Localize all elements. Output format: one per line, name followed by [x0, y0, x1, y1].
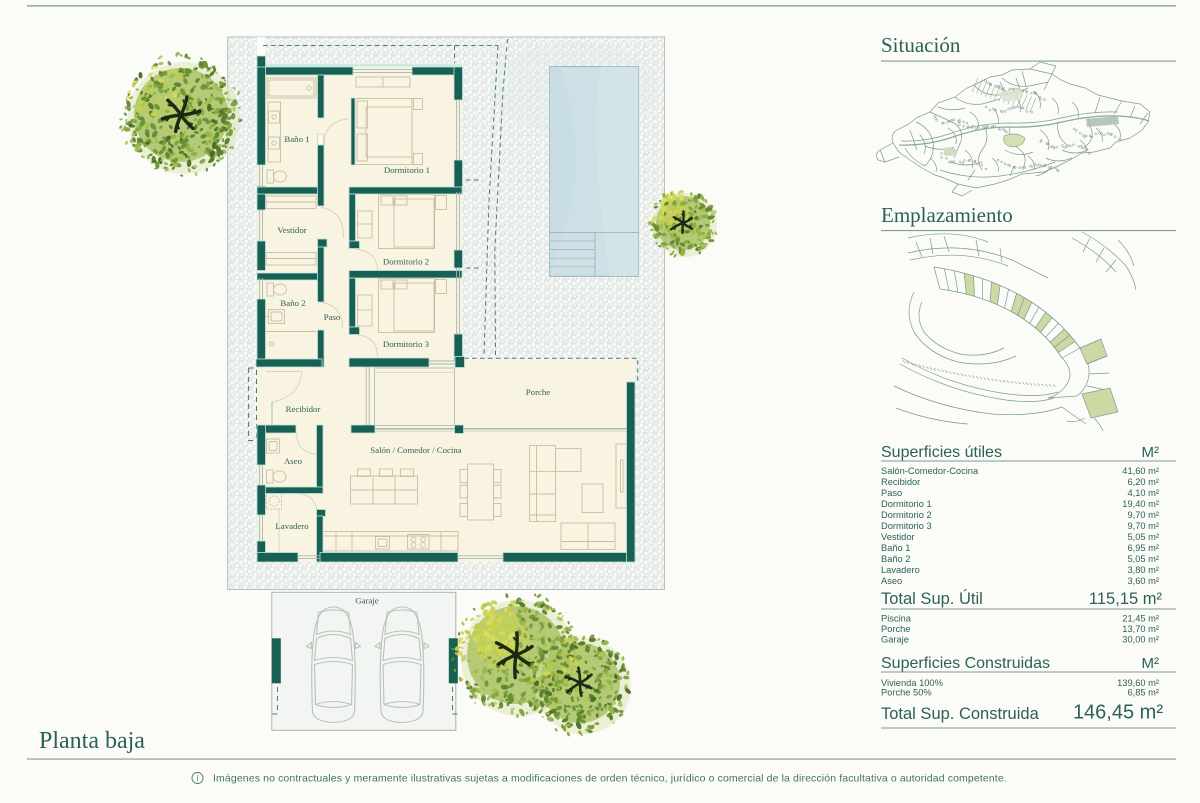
svg-text:30,00 m²: 30,00 m² [1122, 634, 1159, 644]
svg-text:Baño 2: Baño 2 [881, 554, 910, 564]
svg-text:115,15 m²: 115,15 m² [1089, 590, 1163, 608]
svg-text:Paso: Paso [881, 488, 902, 498]
svg-text:Lavadero: Lavadero [275, 521, 309, 531]
svg-text:Aseo: Aseo [284, 456, 303, 466]
svg-text:Total Sup. Útil: Total Sup. Útil [881, 589, 983, 608]
svg-text:6,85 m²: 6,85 m² [1127, 688, 1159, 698]
svg-text:13,70 m²: 13,70 m² [1122, 624, 1159, 634]
svg-text:Aseo: Aseo [881, 576, 902, 586]
svg-text:21,45 m²: 21,45 m² [1122, 614, 1159, 624]
svg-text:Vivienda 100%: Vivienda 100% [881, 678, 943, 688]
svg-text:6,95 m²: 6,95 m² [1127, 543, 1159, 553]
svg-text:Dormitorio 1: Dormitorio 1 [384, 165, 430, 175]
svg-text:Garaje: Garaje [355, 596, 379, 606]
svg-text:Vestidor: Vestidor [881, 532, 915, 542]
svg-text:5,05 m²: 5,05 m² [1127, 532, 1159, 542]
svg-text:Dormitorio 1: Dormitorio 1 [881, 499, 932, 509]
svg-text:Planta baja: Planta baja [39, 728, 145, 754]
svg-text:Paso: Paso [324, 312, 341, 322]
svg-text:Piscina: Piscina [881, 614, 912, 624]
svg-text:Porche 50%: Porche 50% [881, 688, 932, 698]
svg-text:Salón / Comedor / Cocina: Salón / Comedor / Cocina [370, 445, 461, 455]
svg-text:Porche: Porche [881, 624, 910, 634]
svg-text:3,60 m²: 3,60 m² [1127, 576, 1159, 586]
svg-text:5,05 m²: 5,05 m² [1127, 554, 1159, 564]
svg-text:i: i [197, 773, 199, 783]
svg-text:Baño 2: Baño 2 [280, 298, 305, 308]
svg-text:139,60 m²: 139,60 m² [1117, 678, 1159, 688]
svg-text:Total Sup. Construida: Total Sup. Construida [881, 705, 1040, 723]
svg-text:Salón-Comedor-Cocina: Salón-Comedor-Cocina [881, 466, 979, 476]
svg-text:Situación: Situación [881, 33, 961, 57]
svg-text:Lavadero: Lavadero [881, 565, 920, 575]
svg-text:Vestidor: Vestidor [277, 225, 306, 235]
svg-text:19,40 m²: 19,40 m² [1122, 499, 1159, 509]
svg-text:M²: M² [1142, 444, 1160, 461]
svg-text:Dormitorio 3: Dormitorio 3 [881, 521, 932, 531]
svg-text:Imágenes no contractuales y me: Imágenes no contractuales y meramente il… [213, 773, 1007, 785]
svg-text:Superficies Construidas: Superficies Construidas [881, 655, 1050, 672]
svg-text:146,45 m²: 146,45 m² [1073, 702, 1163, 724]
svg-text:3,80 m²: 3,80 m² [1127, 565, 1159, 575]
svg-text:Recibidor: Recibidor [881, 477, 920, 487]
svg-text:9,70 m²: 9,70 m² [1127, 510, 1159, 520]
svg-text:Superficies útiles: Superficies útiles [881, 444, 1002, 461]
svg-text:4,10 m²: 4,10 m² [1127, 488, 1159, 498]
svg-text:41,60 m²: 41,60 m² [1122, 466, 1159, 476]
svg-text:Emplazamiento: Emplazamiento [881, 203, 1013, 227]
svg-text:Dormitorio 3: Dormitorio 3 [383, 339, 430, 349]
svg-text:Dormitorio 2: Dormitorio 2 [383, 257, 429, 267]
svg-text:9,70 m²: 9,70 m² [1127, 521, 1159, 531]
svg-text:Dormitorio 2: Dormitorio 2 [881, 510, 932, 520]
svg-text:Garaje: Garaje [881, 634, 909, 644]
svg-text:Baño 1: Baño 1 [881, 543, 910, 553]
svg-text:6,20 m²: 6,20 m² [1127, 477, 1159, 487]
svg-text:M²: M² [1142, 655, 1160, 672]
svg-text:Porche: Porche [526, 387, 551, 397]
svg-text:Recibidor: Recibidor [286, 404, 321, 414]
svg-text:Baño 1: Baño 1 [284, 134, 309, 144]
